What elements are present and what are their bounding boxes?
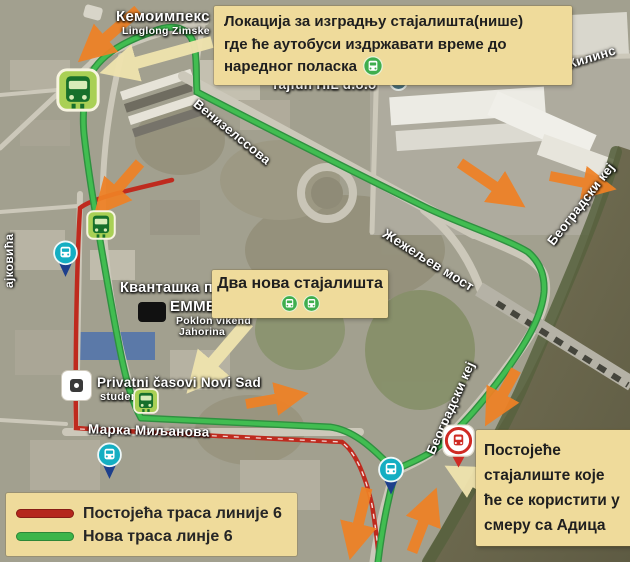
label-kvantaska: Кванташка п — [120, 280, 213, 296]
callout-niche-line1: Локација за изградњу стајалишта(нише) — [224, 11, 562, 34]
legend-label-new-route: Нова траса линје 6 — [83, 528, 233, 546]
bus-icon — [281, 295, 298, 312]
callout-two-stops: Два нова стајалишта — [212, 270, 388, 318]
legend-label-existing-route: Постојећа траса линије 6 — [83, 505, 282, 523]
legend-swatch-existing-route — [16, 509, 74, 518]
callout-niche-line3: наредног поласка — [224, 56, 562, 79]
bus-stop-pin-teal-2 — [96, 442, 123, 480]
callout-existing-stop: Постојеће стајалиште које ће се користит… — [476, 430, 630, 546]
place-icon — [62, 371, 91, 400]
label-rajkovica: ајковића — [2, 234, 16, 288]
label-kemoimpeks: Кемоимпекс — [116, 8, 210, 25]
bus-stop-pin-teal-3 — [377, 456, 405, 496]
bus-stop-pin-teal-1 — [52, 240, 79, 278]
bus-icon — [363, 56, 383, 76]
bus-stop-icon-green — [86, 210, 116, 240]
label-marka-miljanova: Марка Миљанова — [88, 421, 210, 439]
callout-niche-line2: где ће аутобуси издржавати време до — [224, 34, 562, 57]
label-jahorina: Jahorina — [179, 326, 225, 338]
bus-icon — [303, 295, 320, 312]
callout-existing-line2: стајалиште које — [484, 463, 630, 488]
callout-existing-line1: Постојеће — [484, 438, 630, 463]
legend: Постојећа траса линије 6 Нова траса линј… — [6, 493, 297, 556]
legend-row-existing: Постојећа траса линије 6 — [16, 502, 287, 525]
callout-two-stops-text: Два нова стајалишта — [216, 275, 384, 293]
legend-swatch-new-route — [16, 532, 74, 541]
bus-stop-pin-red — [441, 423, 476, 469]
label-emmezeta: EMME — [170, 298, 216, 315]
emmezeta-logo — [138, 302, 166, 322]
legend-row-new: Нова траса линје 6 — [16, 525, 287, 548]
label-privatni-casovi: Privatni časovi Novi Sad — [97, 375, 261, 390]
callout-existing-line4: смеру са Адица — [484, 513, 630, 538]
callout-niche: Локација за изградњу стајалишта(нише) гд… — [214, 6, 572, 85]
bus-stop-icon-green-small — [133, 388, 159, 414]
label-linglong: Linglong Zimske — [122, 25, 210, 37]
bus-stop-icon-niche — [55, 68, 101, 112]
callout-existing-line3: ће се користити у — [484, 488, 630, 513]
map-image: Кемоимпекс Linglong Zimske Tajfun HIL d.… — [0, 0, 630, 562]
